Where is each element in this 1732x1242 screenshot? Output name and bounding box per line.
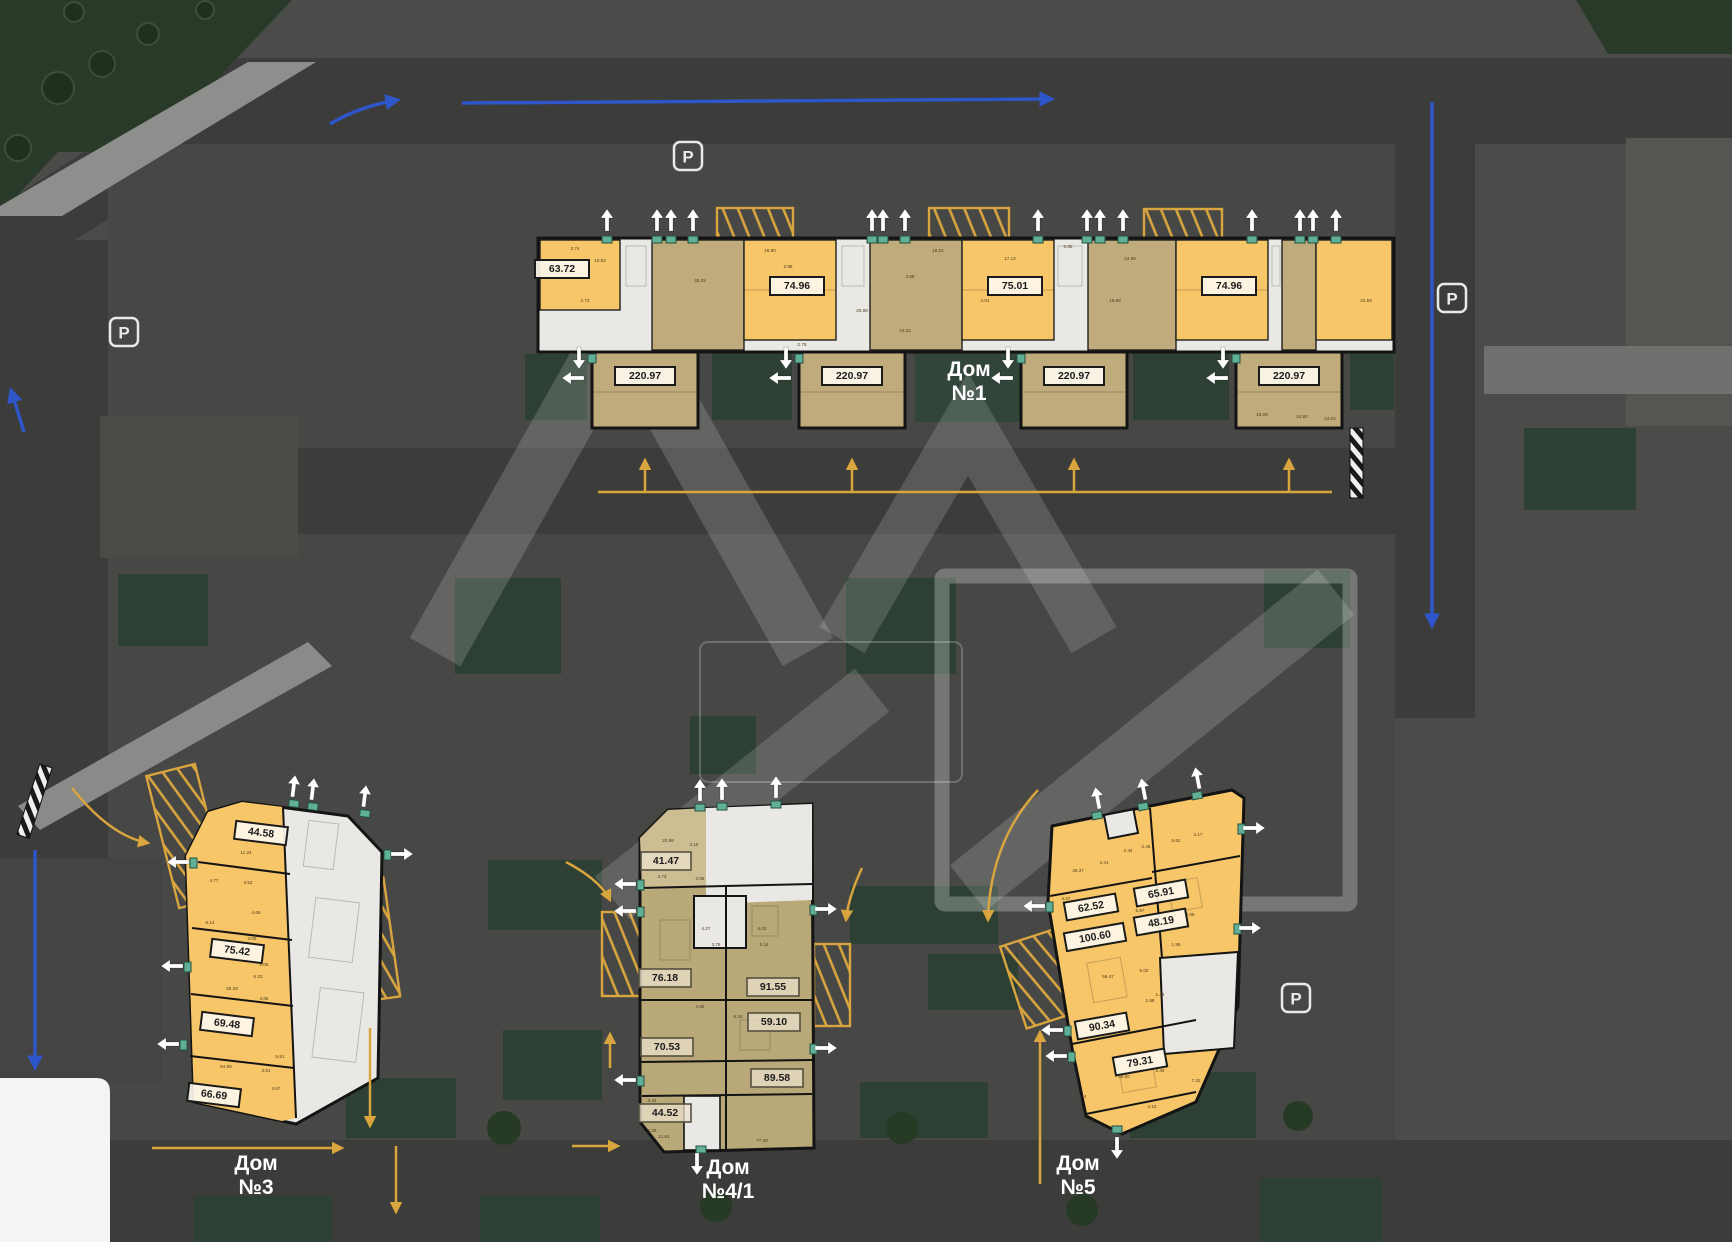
- building-dom1[interactable]: 63.72 74.96 75.01 74.96 220.97 220.97 22…: [535, 209, 1394, 428]
- svg-text:4.17: 4.17: [1194, 832, 1203, 837]
- svg-text:3.44: 3.44: [648, 1098, 657, 1103]
- svg-text:4.05: 4.05: [1186, 912, 1195, 917]
- path-strip: [1484, 346, 1732, 394]
- area-value[interactable]: 74.96: [1216, 280, 1242, 292]
- svg-text:56.29: 56.29: [226, 986, 238, 991]
- svg-text:3.06: 3.06: [248, 936, 257, 941]
- apartment-area-label[interactable]: 89.58: [751, 1069, 803, 1087]
- apartment-area-label[interactable]: 220.97: [1044, 367, 1104, 385]
- svg-text:3.74: 3.74: [571, 246, 580, 251]
- svg-text:2.78: 2.78: [798, 342, 807, 347]
- area-value[interactable]: 76.18: [652, 972, 678, 984]
- svg-text:54.96: 54.96: [220, 1064, 232, 1069]
- svg-text:3.67: 3.67: [272, 1086, 281, 1091]
- svg-text:5.34: 5.34: [734, 1014, 743, 1019]
- parking-hatch: [602, 912, 640, 996]
- parking-hatch: [814, 944, 850, 1026]
- svg-text:16.28: 16.28: [1256, 412, 1268, 417]
- apartment-area-label[interactable]: 91.55: [747, 978, 799, 996]
- svg-text:4.10: 4.10: [1148, 1104, 1157, 1109]
- svg-text:2.46: 2.46: [1142, 844, 1151, 849]
- apartment-area-label[interactable]: 70.53: [641, 1038, 693, 1056]
- apartment-area-label[interactable]: 63.72: [535, 260, 589, 278]
- svg-text:2.98: 2.98: [784, 264, 793, 269]
- svg-text:20.96: 20.96: [662, 838, 674, 843]
- svg-text:1.98: 1.98: [1146, 998, 1155, 1003]
- svg-text:4.15: 4.15: [690, 842, 699, 847]
- block-roof: [100, 416, 298, 558]
- svg-text:5.85: 5.85: [1064, 244, 1073, 249]
- svg-text:20.88: 20.88: [856, 308, 868, 313]
- svg-text:22.59: 22.59: [1360, 298, 1372, 303]
- svg-text:10.84: 10.84: [594, 258, 606, 263]
- apartment-area-label[interactable]: 59.10: [748, 1013, 800, 1031]
- svg-text:48.37: 48.37: [1072, 868, 1084, 873]
- apartment-area-label[interactable]: 75.01: [988, 277, 1042, 295]
- svg-text:11.61: 11.61: [658, 1134, 670, 1139]
- svg-text:3.86: 3.86: [696, 876, 705, 881]
- svg-text:1.46: 1.46: [1156, 992, 1165, 997]
- area-value[interactable]: 70.53: [654, 1041, 680, 1053]
- area-value[interactable]: 220.97: [1058, 370, 1090, 382]
- svg-text:4.25: 4.25: [648, 1128, 657, 1133]
- svg-text:3.85: 3.85: [906, 274, 915, 279]
- area-value[interactable]: 59.10: [761, 1016, 787, 1028]
- svg-text:4.65: 4.65: [696, 1004, 705, 1009]
- svg-text:4.77: 4.77: [210, 878, 219, 883]
- dom41-stair-core: [694, 896, 746, 948]
- svg-text:3.61: 3.61: [262, 1068, 271, 1073]
- dom1-apartments-fill[interactable]: [540, 240, 1392, 350]
- area-value[interactable]: 75.01: [1002, 280, 1028, 292]
- svg-text:2.73: 2.73: [581, 298, 590, 303]
- svg-text:56.60: 56.60: [1118, 1074, 1130, 1079]
- svg-text:24.80: 24.80: [1296, 414, 1308, 419]
- apartment-area-label[interactable]: 74.96: [770, 277, 824, 295]
- area-value[interactable]: 220.97: [629, 370, 661, 382]
- site-plan: 63.72 74.96 75.01 74.96 220.97 220.97 22…: [0, 0, 1732, 1242]
- svg-text:5.14: 5.14: [206, 920, 215, 925]
- svg-text:18.01: 18.01: [932, 248, 944, 253]
- svg-text:77.38: 77.38: [756, 1138, 768, 1143]
- area-value[interactable]: 63.72: [549, 263, 575, 275]
- svg-text:5.16: 5.16: [760, 942, 769, 947]
- apartment-area-label[interactable]: 220.97: [822, 367, 882, 385]
- building-name: №5: [1060, 1176, 1095, 1199]
- svg-text:4.65: 4.65: [260, 996, 269, 1001]
- building-name: Дом: [1056, 1152, 1099, 1175]
- svg-text:3.76: 3.76: [712, 942, 721, 947]
- svg-text:4.27: 4.27: [702, 926, 711, 931]
- area-value[interactable]: 44.52: [652, 1107, 678, 1119]
- svg-text:4.01: 4.01: [981, 298, 990, 303]
- building-name: №1: [951, 382, 986, 405]
- dom5-common-white: [1160, 952, 1238, 1054]
- svg-text:3.52: 3.52: [244, 880, 253, 885]
- building-name: Дом: [706, 1156, 749, 1179]
- svg-text:58.47: 58.47: [1102, 974, 1114, 979]
- barrier-post: [1350, 428, 1363, 498]
- area-value[interactable]: 89.58: [764, 1072, 790, 1084]
- building-name: №4/1: [702, 1180, 755, 1203]
- svg-text:4.57: 4.57: [1062, 896, 1071, 901]
- dom5-top-notch: [1104, 809, 1138, 838]
- svg-text:5.87: 5.87: [1136, 908, 1145, 913]
- svg-text:5.81: 5.81: [276, 1054, 285, 1059]
- svg-text:11.24: 11.24: [240, 850, 252, 855]
- apartment-area-label[interactable]: 220.97: [615, 367, 675, 385]
- area-value[interactable]: 220.97: [836, 370, 868, 382]
- svg-text:16.88: 16.88: [1109, 298, 1121, 303]
- dom41-common-white: [706, 804, 812, 904]
- svg-text:16.80: 16.80: [764, 248, 776, 253]
- svg-text:1.99: 1.99: [1172, 942, 1181, 947]
- svg-text:5.02: 5.02: [1140, 968, 1149, 973]
- building-name: №3: [238, 1176, 273, 1199]
- road-right: [1395, 58, 1475, 718]
- svg-text:2.44: 2.44: [1124, 848, 1133, 853]
- road-bottom: [108, 1140, 1732, 1242]
- svg-text:P: P: [1446, 290, 1457, 309]
- svg-text:5.23: 5.23: [254, 974, 263, 979]
- area-value[interactable]: 220.97: [1273, 370, 1305, 382]
- area-value[interactable]: 91.55: [760, 981, 786, 993]
- apartment-area-label[interactable]: 76.18: [639, 969, 691, 987]
- svg-text:3.41: 3.41: [1100, 860, 1109, 865]
- svg-text:45.25: 45.25: [694, 278, 706, 283]
- building-name: Дом: [234, 1152, 277, 1175]
- svg-text:24.04: 24.04: [1324, 416, 1336, 421]
- svg-text:P: P: [682, 148, 693, 167]
- svg-text:4.73: 4.73: [658, 874, 667, 879]
- apartment-area-label[interactable]: 44.52: [639, 1104, 691, 1122]
- svg-text:3.44: 3.44: [1078, 1094, 1087, 1099]
- svg-text:24.32: 24.32: [899, 328, 911, 333]
- svg-text:P: P: [118, 324, 129, 343]
- svg-text:5.49: 5.49: [1156, 1068, 1165, 1073]
- svg-text:4.02: 4.02: [758, 926, 767, 931]
- white-building-block: [0, 1078, 110, 1242]
- area-value[interactable]: 74.96: [784, 280, 810, 292]
- svg-text:2.06: 2.06: [260, 962, 269, 967]
- svg-text:17.12: 17.12: [1004, 256, 1016, 261]
- apartment-area-label[interactable]: 41.47: [641, 852, 691, 870]
- block-roof: [0, 858, 162, 1082]
- svg-text:4.68: 4.68: [252, 910, 261, 915]
- svg-text:4.25: 4.25: [1086, 1118, 1095, 1123]
- area-value[interactable]: 41.47: [653, 855, 679, 867]
- apartment-area-label[interactable]: 220.97: [1259, 367, 1319, 385]
- svg-text:5.62: 5.62: [1172, 838, 1181, 843]
- building-name: Дом: [947, 358, 990, 381]
- svg-text:P: P: [1290, 990, 1301, 1009]
- apartment-area-label[interactable]: 74.96: [1202, 277, 1256, 295]
- svg-text:7.32: 7.32: [1192, 1078, 1201, 1083]
- svg-text:24.96: 24.96: [1124, 256, 1136, 261]
